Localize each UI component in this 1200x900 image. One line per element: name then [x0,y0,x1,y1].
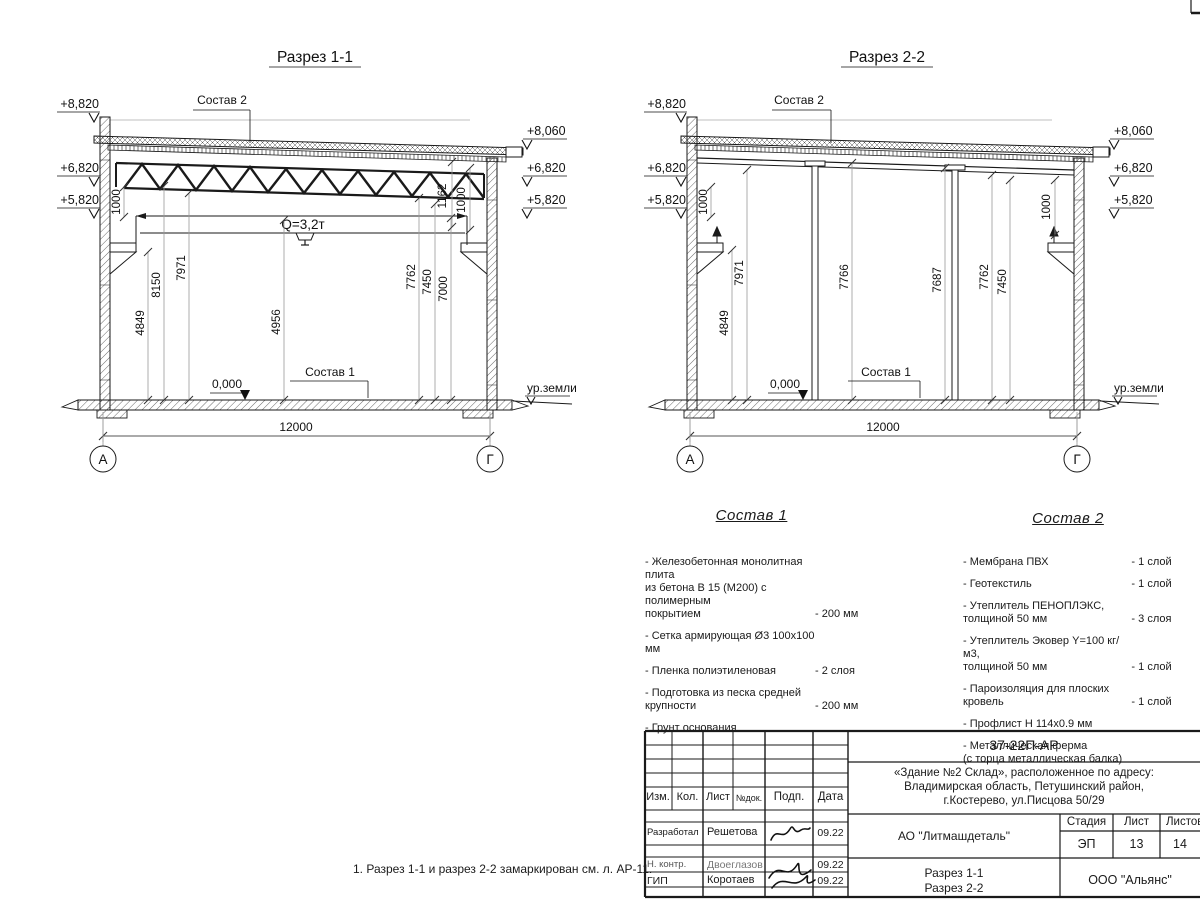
sheet-value: 13 [1113,837,1160,851]
svg-text:7000: 7000 [438,276,450,302]
sostav2-leader: Состав 2 [772,93,831,143]
section-1-1-drawing: Разрез 1-1 Q=3,2т [0,0,600,500]
svg-text:Состав 2: Состав 2 [774,93,824,107]
svg-text:ур.земли: ур.земли [527,381,577,395]
stage-value: ЭП [1060,837,1113,851]
right-wall [487,158,497,410]
axis-bubble-G: Г [477,418,503,472]
list-item: - Пленка полиэтиленовая - 2 слоя [645,665,862,678]
sostav1-leader: Состав 1 [290,365,368,398]
svg-text:1000: 1000 [1041,194,1053,220]
stage-label: Стадия [1060,816,1113,828]
floor-slab [649,400,1115,418]
svg-text:+6,820: +6,820 [60,161,99,175]
svg-text:+8,060: +8,060 [1114,124,1153,138]
svg-text:А: А [685,452,694,467]
elevation-marks-right: +8,060 +6,820 +5,820 [1109,124,1154,218]
svg-text:7762: 7762 [406,264,418,290]
crane-capacity-label: Q=3,2т [281,217,324,232]
list-item: - Геотекстиль - 1 слой [963,578,1177,591]
svg-text:+5,820: +5,820 [647,193,686,207]
customer-name: АО "Литмашдеталь" [848,829,1060,843]
sostav1-title: Состав 1 [643,509,860,522]
section1-title: Разрез 1-1 [277,49,353,66]
elevation-marks-left: +8,820 +6,820 +5,820 [57,97,100,218]
svg-text:+6,820: +6,820 [1114,161,1153,175]
row2-date: 09.22 [813,859,848,871]
span-dimension: 12000 [99,412,494,442]
anchor-arrow-icon [713,227,721,236]
col-izm: Изм. [644,791,672,803]
col-data: Дата [813,791,848,803]
span-dimension: 12000 [686,412,1081,442]
roof-slab [681,136,1110,162]
object-address: «Здание №2 Склад», расположенное по адре… [858,766,1190,808]
svg-text:12000: 12000 [866,420,900,434]
svg-text:1000: 1000 [111,189,123,215]
svg-text:12000: 12000 [279,420,313,434]
axis-bubble-G: Г [1064,418,1090,472]
elevation-arrow-icon [89,113,99,122]
svg-text:7762: 7762 [979,264,991,290]
elevation-arrow-icon [1114,397,1122,404]
list-item: - Мембрана ПВХ - 1 слой [963,556,1177,569]
svg-text:+8,820: +8,820 [647,97,686,111]
svg-text:7450: 7450 [997,269,1009,295]
left-wall [100,117,110,410]
left-corbel [697,227,723,274]
left-corbel [110,243,136,274]
sheets-label: Листов [1160,816,1200,828]
svg-text:Г: Г [486,452,494,467]
doc-number: 37-22П-АР [848,737,1200,753]
svg-text:7766: 7766 [839,264,851,290]
sostav2-title: Состав 2 [961,512,1175,525]
floor-slab [62,400,528,418]
list-item: - Подготовка из песка средней крупности … [645,687,862,713]
left-foundation [684,410,714,418]
svg-text:1000: 1000 [456,187,468,213]
sostav1-leader: Состав 1 [848,365,920,398]
row1-role: Разработал [647,827,703,838]
elevation-arrow-icon [1109,209,1119,218]
svg-text:4849: 4849 [135,310,147,336]
svg-text:Состав 1: Состав 1 [305,365,355,379]
row1-name: Решетова [707,826,765,838]
svg-text:7450: 7450 [422,269,434,295]
right-foundation [463,410,493,418]
row3-name: Коротаев [707,874,765,886]
svg-text:Г: Г [1073,452,1081,467]
svg-text:0,000: 0,000 [770,377,800,391]
drawing-sheet: Разрез 1-1 Q=3,2т [0,0,1200,900]
elevation-arrow-icon [1109,177,1119,186]
right-foundation [1050,410,1080,418]
ground-level-label: ур.земли [525,381,577,404]
svg-text:7687: 7687 [932,267,944,293]
roof-truss [116,163,484,199]
svg-text:1162: 1162 [437,184,449,209]
svg-text:ур.земли: ур.земли [1114,381,1164,395]
elevation-arrow-icon [89,209,99,218]
svg-text:1000: 1000 [698,189,710,215]
elevation-arrow-icon [676,113,686,122]
list-item: - Утеплитель ПЕНОПЛЭКС, толщиной 50 мм -… [963,600,1177,626]
elevation-arrow-icon [89,177,99,186]
list-item: - Утеплитель Эковер Y=100 кг/м3, толщино… [963,635,1177,674]
svg-text:+5,820: +5,820 [527,193,566,207]
row2-role: Н. контр. [647,859,703,870]
list-item: - Железобетонная монолитная плита из бет… [645,556,862,621]
col-kol: Кол. [672,791,703,803]
right-corbel [461,243,487,274]
col-ndok: №док. [733,793,765,803]
sostav1-list: Состав 1 - Железобетонная монолитная пли… [643,509,860,709]
svg-text:7971: 7971 [176,255,188,281]
list-item: - Сетка армирующая Ø3 100х100 мм [645,630,862,656]
sostav2-list: Состав 2 - Мембрана ПВХ - 1 слой - Геоте… [961,512,1175,722]
svg-text:+6,820: +6,820 [647,161,686,175]
axis-bubble-A: А [677,418,703,472]
right-corbel [1048,227,1074,274]
sheet-label: Лист [1113,816,1160,828]
sostav2-leader: Состав 2 [193,93,250,143]
svg-text:+8,060: +8,060 [527,124,566,138]
title-block: 37-22П-АР «Здание №2 Склад», расположенн… [643,730,1200,900]
anchor-arrow-icon [1050,227,1058,236]
roof-beam [697,158,1074,175]
svg-text:4849: 4849 [719,310,731,336]
zero-level-mark: 0,000 [768,377,808,400]
svg-text:+8,820: +8,820 [60,97,99,111]
col-podp: Подп. [765,791,813,803]
row3-date: 09.22 [813,875,848,887]
sheets-value: 14 [1160,837,1200,851]
elevation-arrow-icon [676,177,686,186]
right-wall [1074,158,1084,410]
svg-text:+5,820: +5,820 [60,193,99,207]
svg-text:7971: 7971 [734,260,746,286]
section-2-2-drawing: Разрез 2-2 [587,0,1200,500]
row1-date: 09.22 [813,827,848,839]
svg-text:Состав 2: Состав 2 [197,93,247,107]
drawing-note: 1. Разрез 1-1 и разрез 2-2 замаркирован … [353,862,652,876]
left-foundation [97,410,127,418]
axis-bubble-A: А [90,418,116,472]
svg-text:+6,820: +6,820 [527,161,566,175]
row3-role: ГИП [647,875,703,887]
svg-text:8150: 8150 [151,272,163,298]
vertical-dimensions: 4849 8150 7971 4956 7762 7450 7000 1000 … [111,158,474,404]
left-wall [687,117,697,410]
elevation-arrow-icon [522,209,532,218]
elevation-marks-right: +8,060 +6,820 +5,820 [522,124,567,218]
roof-slab [94,136,523,162]
zero-level-mark: 0,000 [210,377,250,400]
elevation-arrow-icon [522,177,532,186]
frame-corner [1180,0,1200,20]
svg-text:0,000: 0,000 [212,377,242,391]
section2-title: Разрез 2-2 [849,49,925,66]
elevation-marks-left: +8,820 +6,820 +5,820 [644,97,687,218]
col-list: Лист [703,791,733,803]
svg-text:+5,820: +5,820 [1114,193,1153,207]
company-name: ООО "Альянс" [1060,873,1200,887]
row2-name: Двоеглазов [707,859,765,871]
elevation-arrow-icon [676,209,686,218]
crane-beam: Q=3,2т [136,213,467,245]
svg-text:4956: 4956 [271,309,283,335]
sheet-name: Разрез 1-1 Разрез 2-2 [848,866,1060,896]
svg-text:Состав 1: Состав 1 [861,365,911,379]
crane-trolley-icon [296,233,314,245]
ground-level-label: ур.земли [1112,381,1164,404]
elevation-arrow-icon [527,397,535,404]
list-item: - Пароизоляция для плоских кровель - 1 с… [963,683,1177,709]
svg-text:А: А [98,452,107,467]
